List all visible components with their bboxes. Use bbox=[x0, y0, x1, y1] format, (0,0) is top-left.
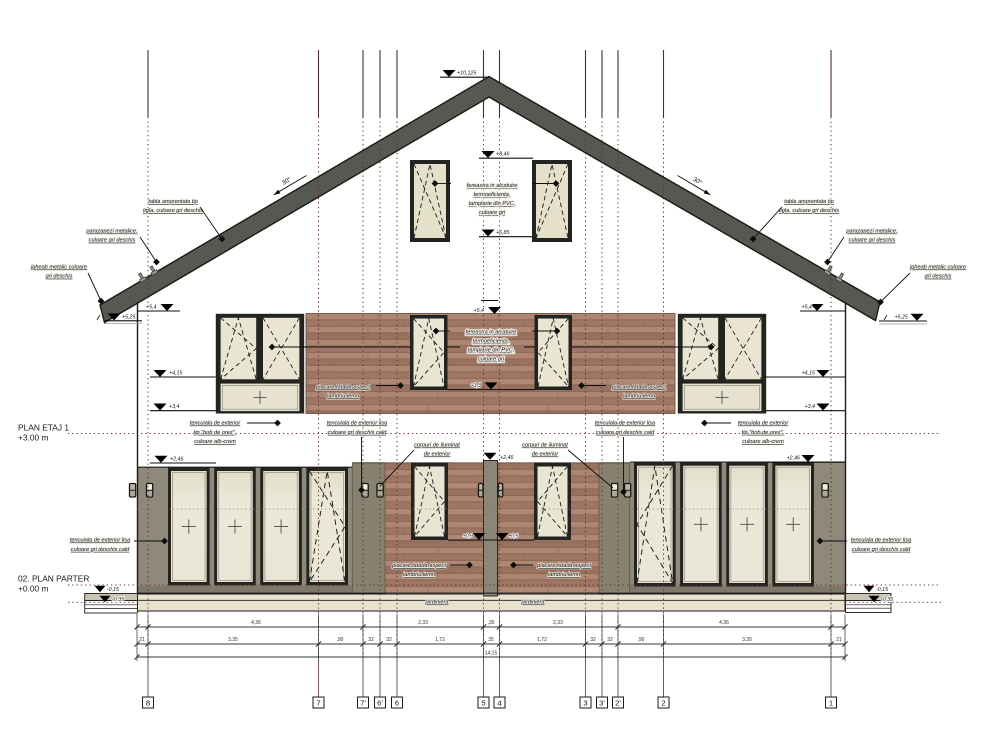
svg-text:+0.00 m: +0.00 m bbox=[18, 584, 49, 594]
svg-text:+5,4: +5,4 bbox=[146, 305, 157, 311]
svg-text:+3.00 m: +3.00 m bbox=[18, 433, 49, 443]
svg-text:tencuiala de exteriortip "bob: tencuiala de exteriortip "bob de orez",c… bbox=[190, 421, 242, 446]
svg-text:jardiniera: jardiniera bbox=[424, 600, 448, 606]
svg-text:+6,85: +6,85 bbox=[496, 230, 509, 236]
svg-text:1,72: 1,72 bbox=[435, 637, 445, 643]
svg-text:+5,25: +5,25 bbox=[122, 315, 135, 321]
svg-text:4,36: 4,36 bbox=[719, 620, 729, 626]
svg-text:3': 3' bbox=[599, 699, 605, 708]
svg-text:3.35: 3.35 bbox=[742, 637, 752, 643]
svg-text:+3,4: +3,4 bbox=[169, 404, 180, 410]
svg-text:21: 21 bbox=[836, 637, 842, 643]
svg-text:7: 7 bbox=[316, 699, 320, 708]
svg-text:32: 32 bbox=[386, 637, 392, 643]
svg-text:32: 32 bbox=[607, 637, 613, 643]
svg-text:-0,35: -0,35 bbox=[881, 597, 893, 603]
svg-text:jardiniera: jardiniera bbox=[520, 600, 544, 606]
svg-text:6: 6 bbox=[395, 699, 399, 708]
svg-text:1,72: 1,72 bbox=[537, 637, 547, 643]
svg-text:35: 35 bbox=[488, 637, 494, 643]
svg-text:+5,4: +5,4 bbox=[474, 308, 485, 314]
svg-text:+8,46: +8,46 bbox=[496, 152, 509, 158]
svg-text:6': 6' bbox=[377, 699, 383, 708]
svg-text:32: 32 bbox=[368, 637, 374, 643]
svg-text:+2,46: +2,46 bbox=[170, 457, 183, 463]
svg-text:-0,15: -0,15 bbox=[107, 587, 119, 593]
svg-text:+3,4: +3,4 bbox=[805, 404, 816, 410]
svg-text:1: 1 bbox=[829, 699, 833, 708]
svg-text:+0,9: +0,9 bbox=[508, 534, 519, 540]
svg-text:,30: ,30 bbox=[488, 620, 495, 626]
svg-text:14,15: 14,15 bbox=[485, 651, 498, 657]
svg-text:2: 2 bbox=[661, 699, 665, 708]
svg-text:32: 32 bbox=[590, 637, 596, 643]
svg-text:PLAN ETAJ 1: PLAN ETAJ 1 bbox=[18, 423, 69, 433]
svg-text:7': 7' bbox=[360, 699, 366, 708]
svg-text:tencuiala de exteriortip "bob: tencuiala de exteriortip "bob de orez",c… bbox=[738, 421, 790, 446]
svg-text:+10,125: +10,125 bbox=[457, 71, 476, 77]
svg-text:02. PLAN PARTER: 02. PLAN PARTER bbox=[18, 574, 89, 584]
svg-text:+4,15: +4,15 bbox=[169, 371, 182, 377]
svg-text:-0,35: -0,35 bbox=[112, 597, 124, 603]
svg-text:8: 8 bbox=[146, 699, 150, 708]
svg-text:4: 4 bbox=[497, 699, 501, 708]
svg-text:+4,15: +4,15 bbox=[802, 371, 815, 377]
svg-text:21: 21 bbox=[139, 637, 145, 643]
svg-text:+2,46: +2,46 bbox=[500, 455, 513, 461]
svg-text:5: 5 bbox=[481, 699, 485, 708]
svg-text:3.35: 3.35 bbox=[228, 637, 238, 643]
svg-text:,90: ,90 bbox=[337, 637, 344, 643]
svg-text:2': 2' bbox=[615, 699, 621, 708]
svg-text:3: 3 bbox=[583, 699, 587, 708]
svg-text:2,33: 2,33 bbox=[553, 620, 563, 626]
svg-text:+2,46: +2,46 bbox=[787, 456, 800, 462]
svg-text:-0,15: -0,15 bbox=[876, 587, 888, 593]
svg-text:+0,9: +0,9 bbox=[463, 534, 474, 540]
svg-text:+3,3: +3,3 bbox=[471, 383, 482, 389]
svg-text:2,33: 2,33 bbox=[418, 620, 428, 626]
svg-text:,90: ,90 bbox=[638, 637, 645, 643]
svg-text:+5,4: +5,4 bbox=[802, 305, 813, 311]
svg-text:4,36: 4,36 bbox=[251, 620, 261, 626]
svg-text:+5,25: +5,25 bbox=[895, 315, 908, 321]
